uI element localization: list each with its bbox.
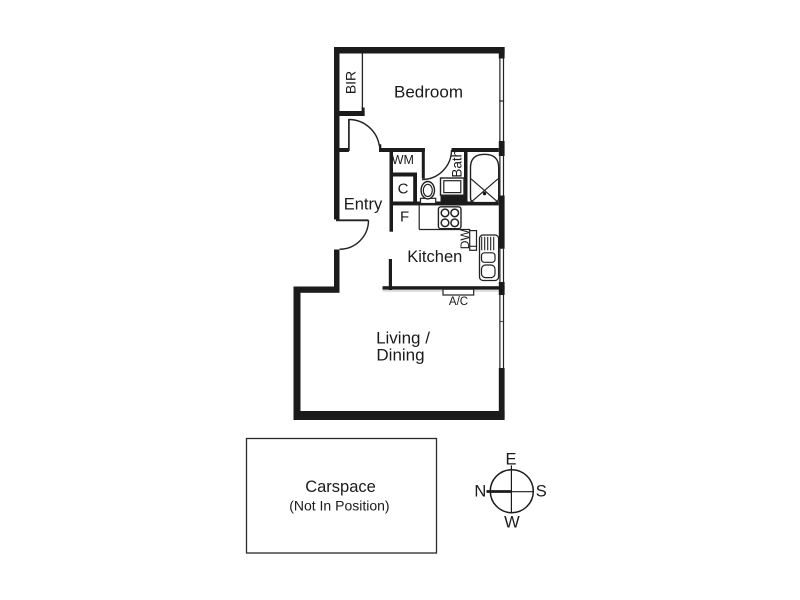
svg-text:Bedroom: Bedroom (394, 83, 463, 102)
svg-text:DW: DW (458, 229, 472, 250)
svg-text:Bath: Bath (449, 150, 464, 178)
svg-text:C: C (398, 180, 409, 197)
svg-text:S: S (536, 483, 547, 501)
svg-text:WM: WM (392, 153, 414, 167)
svg-text:F: F (400, 208, 409, 225)
svg-text:Kitchen: Kitchen (407, 248, 462, 266)
svg-text:A/C: A/C (449, 296, 468, 308)
svg-text:(Not In Position): (Not In Position) (289, 498, 389, 514)
svg-text:Carspace: Carspace (305, 478, 376, 496)
svg-text:BIR: BIR (342, 71, 358, 94)
svg-text:Dining: Dining (376, 345, 424, 364)
svg-text:W: W (504, 514, 520, 532)
svg-text:N: N (474, 482, 486, 500)
svg-text:E: E (505, 451, 516, 469)
svg-text:Entry: Entry (344, 195, 383, 213)
